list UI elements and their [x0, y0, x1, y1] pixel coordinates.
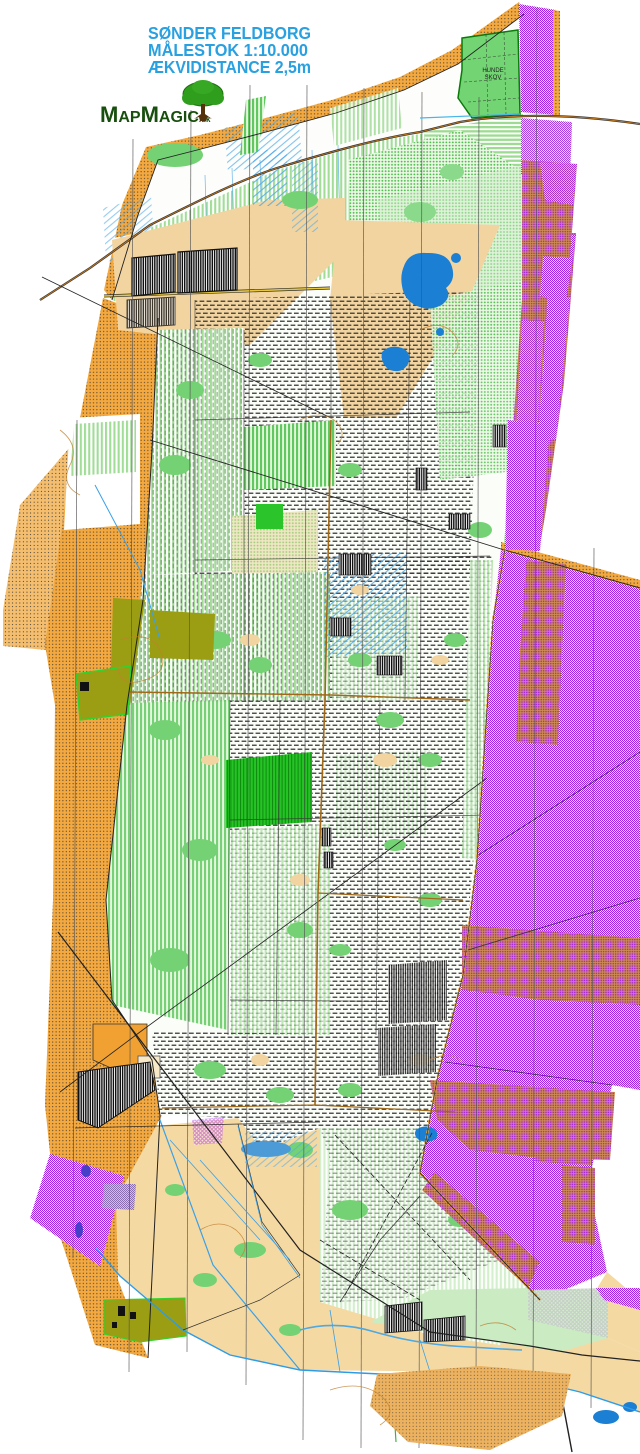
svg-text:HUNDE: HUNDE [482, 68, 503, 74]
svg-text:SKOV: SKOV [485, 75, 502, 81]
svg-text:ÆKVIDISTANCE 2,5m: ÆKVIDISTANCE 2,5m [148, 57, 311, 77]
